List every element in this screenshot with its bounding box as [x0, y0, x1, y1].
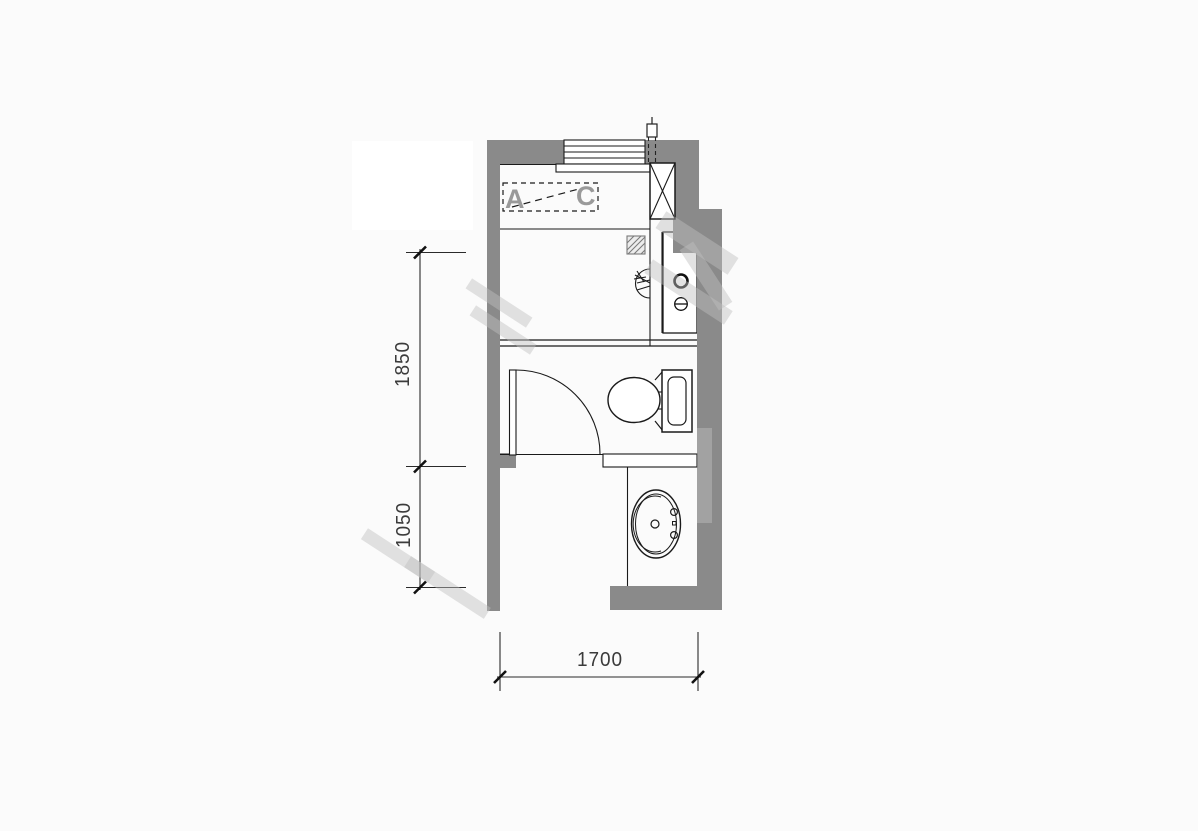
zone-label-c: C [576, 183, 596, 210]
faucet-spout-icon [673, 522, 677, 526]
door-swing-arc [516, 370, 600, 454]
floor-plan-canvas: A C 1850 1050 1700 [0, 0, 1198, 831]
partition-shower-toilet [500, 340, 697, 346]
window-sill [556, 164, 650, 172]
wall-right-upper [675, 165, 699, 210]
plan-drawing [0, 0, 1198, 831]
shaft-column-icon [650, 163, 675, 219]
wall-top-right [645, 140, 699, 165]
washbasin-icon [632, 490, 681, 558]
zone-label-a: A [505, 186, 525, 213]
duct-hatch-icon [627, 236, 645, 254]
wall-right-step [673, 209, 722, 253]
wall-bottom-right [610, 586, 722, 610]
wall-left [487, 140, 500, 611]
basin-drain-icon [651, 520, 659, 528]
door-leaf [510, 370, 517, 455]
toilet-icon [608, 370, 692, 432]
wall-top-left [500, 140, 565, 165]
partition-band [603, 454, 697, 467]
wall-right [697, 253, 722, 587]
dimension-vertical [406, 247, 466, 594]
